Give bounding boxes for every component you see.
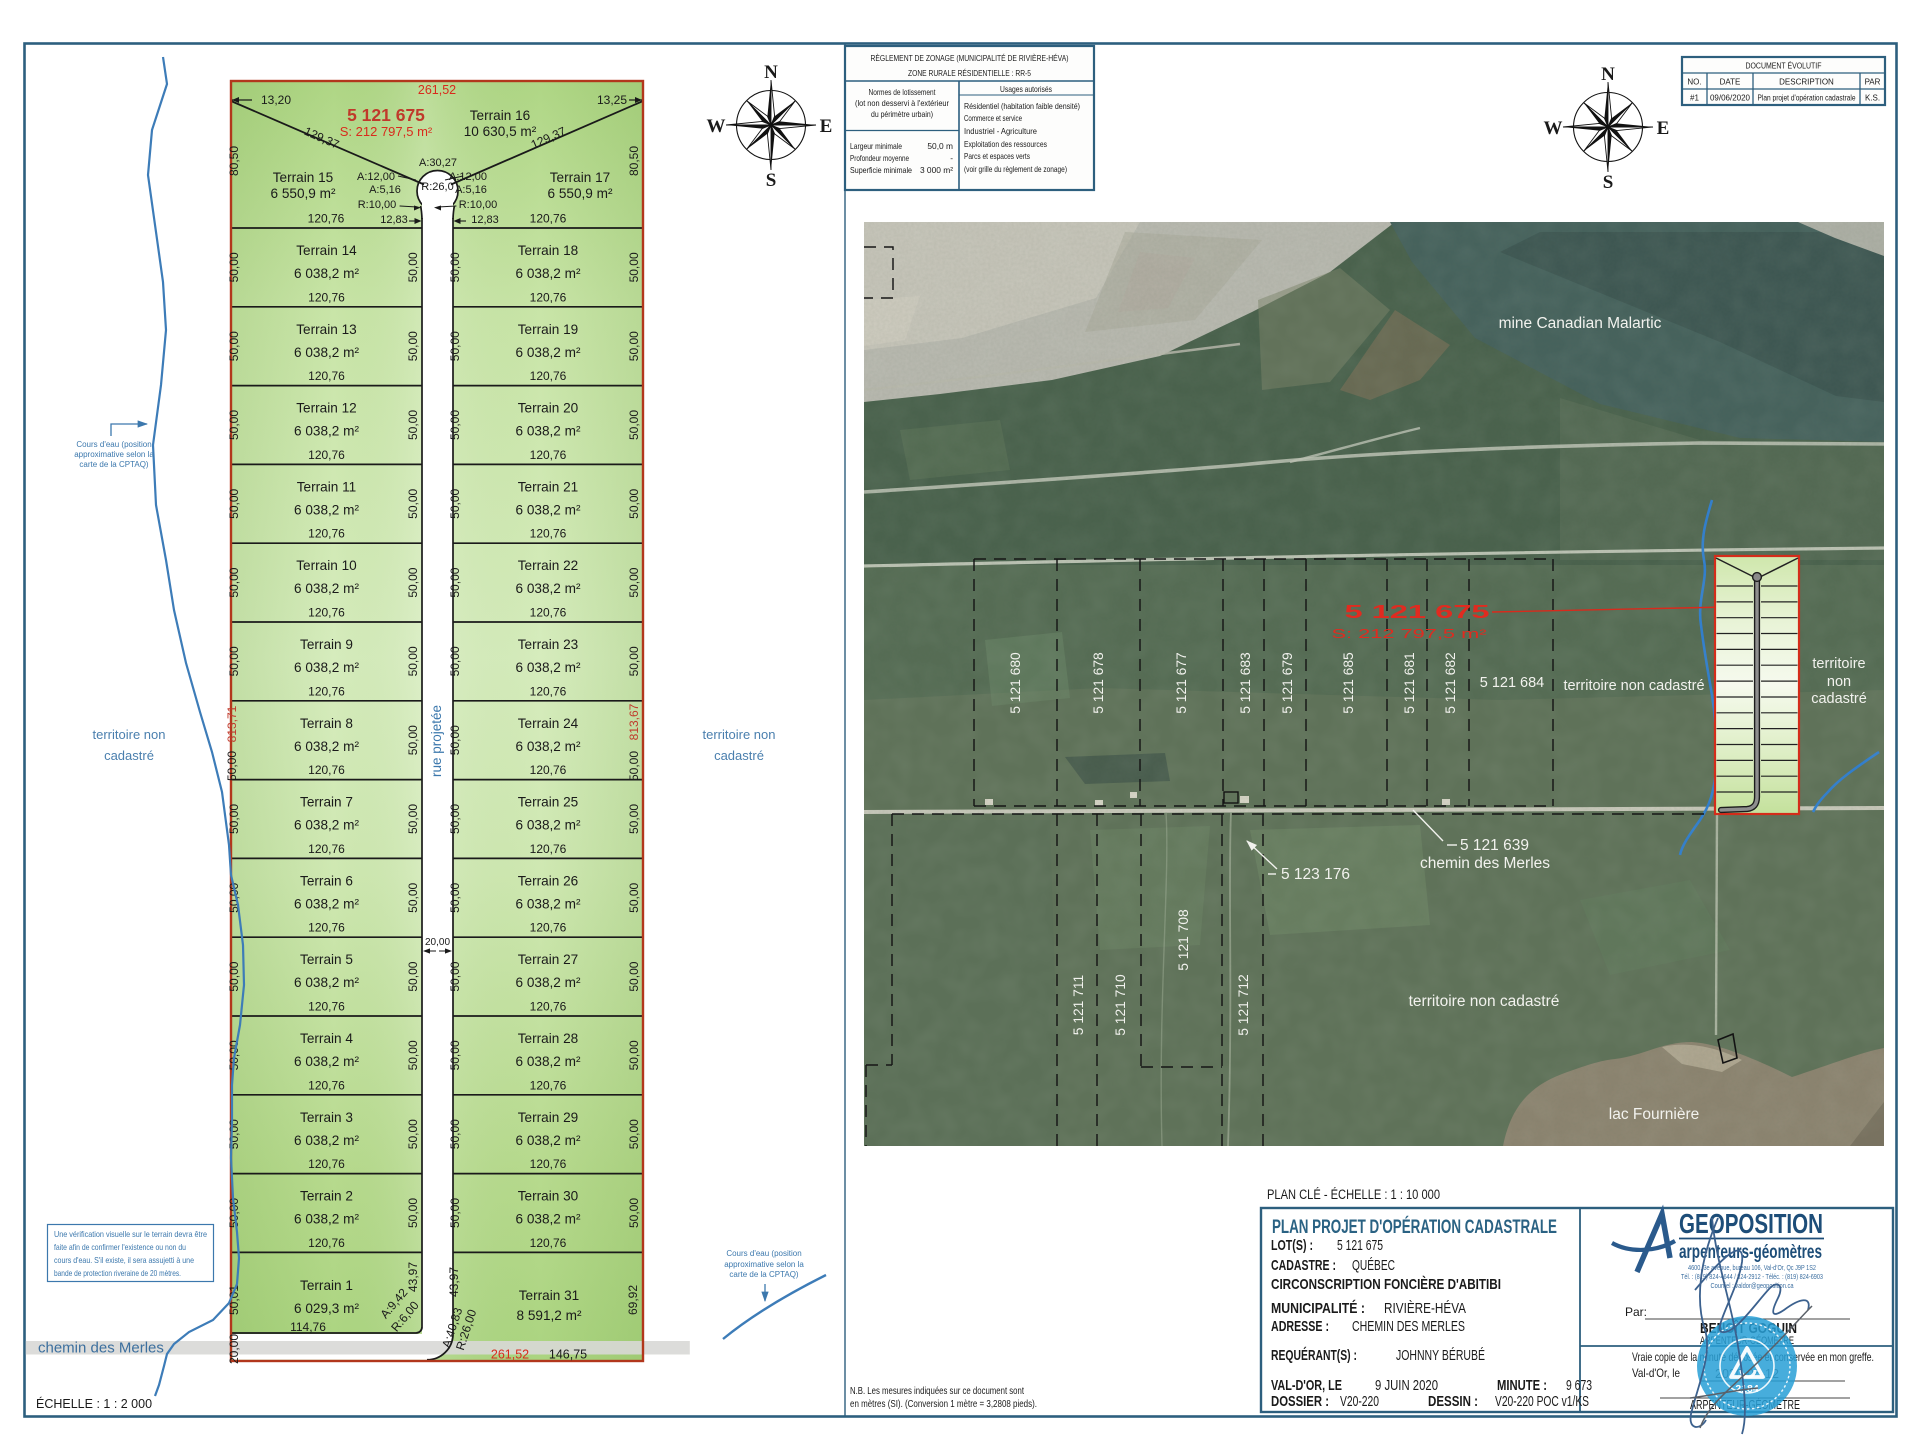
- svg-text:PLAN CLÉ - ÉCHELLE : 1 : 10 00: PLAN CLÉ - ÉCHELLE : 1 : 10 000: [1267, 1187, 1440, 1202]
- svg-text:6 038,2 m²: 6 038,2 m²: [294, 975, 359, 990]
- svg-text:261,52: 261,52: [491, 1348, 529, 1362]
- svg-text:6 038,2 m²: 6 038,2 m²: [294, 818, 359, 833]
- svg-text:Terrain 21: Terrain 21: [518, 479, 578, 494]
- svg-text:N.B. Les mesures indiquées sur: N.B. Les mesures indiquées sur ce docume…: [850, 1386, 1024, 1397]
- svg-text:territoire non: territoire non: [93, 727, 166, 742]
- svg-text:50,00: 50,00: [627, 1040, 641, 1070]
- svg-text:mine Canadian Malartic: mine Canadian Malartic: [1499, 315, 1662, 332]
- svg-text:8 591,2 m²: 8 591,2 m²: [517, 1308, 582, 1323]
- svg-text:5 121 683: 5 121 683: [1238, 652, 1253, 714]
- svg-text:V20-220 POC v1/KS: V20-220 POC v1/KS: [1495, 1393, 1589, 1410]
- svg-text:Terrain 5: Terrain 5: [300, 952, 353, 967]
- svg-text:territoire: territoire: [1812, 656, 1865, 672]
- svg-text:RIVIÈRE-HÉVA: RIVIÈRE-HÉVA: [1384, 1300, 1466, 1317]
- svg-text:REQUÉRANT(S) :: REQUÉRANT(S) :: [1271, 1347, 1357, 1364]
- svg-text:50,00: 50,00: [627, 882, 641, 912]
- svg-text:09/06/2020: 09/06/2020: [1710, 94, 1751, 103]
- svg-text:Terrain 14: Terrain 14: [296, 243, 357, 258]
- svg-text:50,00: 50,00: [448, 961, 462, 991]
- svg-text:VAL-D'OR, LE: VAL-D'OR, LE: [1271, 1377, 1342, 1394]
- svg-text:Terrain 3: Terrain 3: [300, 1110, 353, 1125]
- svg-text:120,76: 120,76: [308, 921, 345, 935]
- svg-text:6 038,2 m²: 6 038,2 m²: [294, 660, 359, 675]
- svg-text:50,00: 50,00: [406, 331, 420, 361]
- svg-text:50,00: 50,00: [406, 1198, 420, 1228]
- svg-text:5 121 685: 5 121 685: [1341, 652, 1356, 714]
- svg-text:50,00: 50,00: [448, 1119, 462, 1149]
- svg-text:rue projetée: rue projetée: [429, 705, 444, 777]
- svg-text:120,76: 120,76: [530, 684, 567, 698]
- svg-text:12,83: 12,83: [380, 214, 408, 226]
- svg-text:50,00: 50,00: [406, 961, 420, 991]
- svg-text:E: E: [820, 116, 833, 137]
- svg-text:50,00: 50,00: [448, 725, 462, 755]
- svg-text:Parcs et espaces verts: Parcs et espaces verts: [964, 151, 1030, 161]
- svg-text:5 121 678: 5 121 678: [1091, 652, 1106, 714]
- svg-text:MINUTE :: MINUTE :: [1497, 1377, 1547, 1394]
- svg-text:80,50: 80,50: [627, 146, 641, 176]
- svg-text:50,00: 50,00: [627, 961, 641, 991]
- svg-text:cours d'eau. S'il existe, il s: cours d'eau. S'il existe, il sera assuje…: [54, 1255, 194, 1265]
- svg-text:6 038,2 m²: 6 038,2 m²: [516, 739, 581, 754]
- svg-text:50,00: 50,00: [627, 567, 641, 597]
- svg-text:120,76: 120,76: [530, 212, 567, 226]
- svg-text:CHEMIN DES MERLES: CHEMIN DES MERLES: [1352, 1318, 1465, 1335]
- svg-text:K.S.: K.S.: [1865, 94, 1880, 103]
- svg-text:5 121 680: 5 121 680: [1008, 652, 1023, 714]
- svg-text:6 038,2 m²: 6 038,2 m²: [516, 1133, 581, 1148]
- svg-text:arpenteurs-géomètres: arpenteurs-géomètres: [1679, 1241, 1822, 1263]
- svg-text:120,76: 120,76: [530, 1157, 567, 1171]
- svg-text:813,67: 813,67: [627, 703, 641, 740]
- svg-text:120,76: 120,76: [530, 921, 567, 935]
- svg-text:DESCRIPTION: DESCRIPTION: [1779, 78, 1834, 87]
- svg-text:120,76: 120,76: [530, 1000, 567, 1014]
- svg-text:chemin des Merles: chemin des Merles: [1420, 855, 1550, 872]
- svg-text:6 038,2 m²: 6 038,2 m²: [294, 424, 359, 439]
- svg-text:50,00: 50,00: [448, 567, 462, 597]
- svg-text:50,00: 50,00: [227, 488, 241, 518]
- svg-text:120,76: 120,76: [530, 448, 567, 462]
- svg-text:Superficie minimale: Superficie minimale: [850, 165, 912, 175]
- svg-text:50,00: 50,00: [627, 646, 641, 676]
- svg-text:lac Fournière: lac Fournière: [1609, 1106, 1699, 1123]
- svg-text:GEOPOSITION: GEOPOSITION: [1679, 1208, 1823, 1239]
- svg-text:120,76: 120,76: [308, 369, 345, 383]
- svg-text:114,76: 114,76: [290, 1320, 326, 1334]
- svg-text:5 121 712: 5 121 712: [1236, 974, 1251, 1035]
- svg-text:S: S: [1603, 172, 1614, 193]
- svg-text:ADRESSE :: ADRESSE :: [1271, 1318, 1329, 1335]
- svg-text:Cours d'eau (position: Cours d'eau (position: [76, 440, 151, 449]
- svg-text:5 121 675: 5 121 675: [1337, 1237, 1383, 1254]
- svg-text:6 550,9 m²: 6 550,9 m²: [548, 186, 613, 201]
- svg-text:CADASTRE :: CADASTRE :: [1271, 1257, 1336, 1274]
- svg-text:120,76: 120,76: [530, 527, 567, 541]
- svg-text:Terrain 7: Terrain 7: [300, 795, 353, 810]
- svg-text:non: non: [1827, 674, 1851, 690]
- svg-text:Largeur minimale: Largeur minimale: [850, 141, 902, 151]
- svg-text:50,00: 50,00: [406, 488, 420, 518]
- svg-text:6 038,2 m²: 6 038,2 m²: [294, 1212, 359, 1227]
- svg-text:DESSIN :: DESSIN :: [1428, 1393, 1478, 1410]
- svg-text:faite afin de confirmer l'exis: faite afin de confirmer l'existence ou n…: [54, 1242, 186, 1252]
- svg-text:120,76: 120,76: [308, 763, 345, 777]
- svg-text:ÉCHELLE : 1 : 2 000: ÉCHELLE : 1 : 2 000: [36, 1396, 152, 1411]
- svg-text:Terrain 25: Terrain 25: [518, 795, 578, 810]
- svg-text:120,76: 120,76: [530, 606, 567, 620]
- svg-text:Terrain 27: Terrain 27: [518, 952, 578, 967]
- svg-text:PAR: PAR: [1865, 78, 1881, 87]
- svg-text:50,00: 50,00: [627, 488, 641, 518]
- svg-text:50,00: 50,00: [627, 1119, 641, 1149]
- svg-text:cadastré: cadastré: [714, 748, 764, 763]
- svg-text:6 038,2 m²: 6 038,2 m²: [516, 660, 581, 675]
- svg-text:LOT(S) :: LOT(S) :: [1271, 1237, 1313, 1254]
- svg-text:120,76: 120,76: [530, 842, 567, 856]
- svg-text:120,76: 120,76: [308, 606, 345, 620]
- svg-text:120,76: 120,76: [530, 290, 567, 304]
- svg-text:E: E: [1657, 118, 1670, 139]
- svg-text:261,52: 261,52: [418, 83, 456, 97]
- svg-text:en mètres (SI). (Conversion 1: en mètres (SI). (Conversion 1 mètre = 3,…: [850, 1399, 1037, 1410]
- svg-text:Terrain 28: Terrain 28: [518, 1031, 578, 1046]
- svg-text:Terrain 31: Terrain 31: [519, 1288, 579, 1303]
- svg-text:Exploitation des ressources: Exploitation des ressources: [964, 139, 1047, 149]
- svg-text:DOSSIER :: DOSSIER :: [1271, 1393, 1329, 1410]
- svg-text:Commerce et service: Commerce et service: [964, 113, 1022, 123]
- svg-text:50,00: 50,00: [406, 882, 420, 912]
- svg-text:Terrain 13: Terrain 13: [296, 322, 356, 337]
- svg-text:50,00: 50,00: [627, 751, 641, 781]
- svg-text:Terrain 4: Terrain 4: [300, 1031, 353, 1046]
- svg-text:50,00: 50,00: [448, 331, 462, 361]
- svg-text:Terrain 22: Terrain 22: [518, 558, 578, 573]
- svg-text:6 038,2 m²: 6 038,2 m²: [516, 818, 581, 833]
- svg-text:Terrain 16: Terrain 16: [470, 108, 530, 123]
- svg-text:Terrain 1: Terrain 1: [300, 1278, 353, 1293]
- svg-text:S: 212 797,5 m²: S: 212 797,5 m²: [340, 124, 433, 139]
- svg-text:Terrain 11: Terrain 11: [297, 479, 356, 494]
- svg-text:9 673: 9 673: [1566, 1377, 1592, 1394]
- svg-text:territoire non cadastré: territoire non cadastré: [1563, 678, 1704, 694]
- svg-text:5 121 682: 5 121 682: [1443, 652, 1458, 713]
- svg-text:6 550,9 m²: 6 550,9 m²: [271, 186, 336, 201]
- svg-text:DOCUMENT ÉVOLUTIF: DOCUMENT ÉVOLUTIF: [1746, 61, 1822, 71]
- svg-text:5 121 711: 5 121 711: [1071, 975, 1086, 1035]
- svg-text:50,00: 50,00: [406, 1040, 420, 1070]
- svg-text:50,00: 50,00: [627, 331, 641, 361]
- svg-text:5 123 176: 5 123 176: [1281, 866, 1350, 883]
- svg-text:NO.: NO.: [1687, 78, 1701, 87]
- svg-text:120,76: 120,76: [308, 527, 345, 541]
- svg-text:6 038,2 m²: 6 038,2 m²: [516, 1054, 581, 1069]
- svg-text:S: S: [766, 170, 777, 191]
- svg-text:120,76: 120,76: [308, 1078, 345, 1092]
- svg-text:120,76: 120,76: [530, 1078, 567, 1092]
- svg-text:120,76: 120,76: [530, 1236, 567, 1250]
- svg-text:6 038,2 m²: 6 038,2 m²: [516, 581, 581, 596]
- svg-text:6 038,2 m²: 6 038,2 m²: [294, 581, 359, 596]
- svg-text:approximative selon la: approximative selon la: [724, 1260, 804, 1269]
- svg-text:Courriel : valdor@geoposition.: Courriel : valdor@geoposition.ca: [1711, 1281, 1795, 1290]
- svg-text:50,00: 50,00: [406, 567, 420, 597]
- svg-text:120,76: 120,76: [308, 684, 345, 698]
- svg-text:Plan projet d'opération cadast: Plan projet d'opération cadastrale: [1758, 94, 1856, 103]
- svg-text:50,00: 50,00: [627, 252, 641, 282]
- svg-text:50,00: 50,00: [627, 804, 641, 834]
- svg-text:6 038,2 m²: 6 038,2 m²: [516, 502, 581, 517]
- svg-text:Terrain 12: Terrain 12: [296, 401, 356, 416]
- svg-text:A:5,16: A:5,16: [455, 184, 487, 196]
- svg-text:territoire non cadastré: territoire non cadastré: [1409, 993, 1560, 1010]
- svg-text:50,00: 50,00: [448, 804, 462, 834]
- svg-text:Terrain 24: Terrain 24: [518, 716, 579, 731]
- svg-text:4600, 3e avenue, bureau 106, V: 4600, 3e avenue, bureau 106, Val-d’Or, Q…: [1688, 1263, 1816, 1272]
- svg-text:Terrain 17: Terrain 17: [550, 170, 610, 185]
- svg-text:146,75: 146,75: [549, 1348, 587, 1362]
- svg-text:6 038,2 m²: 6 038,2 m²: [516, 975, 581, 990]
- svg-text:Terrain 26: Terrain 26: [518, 873, 578, 888]
- svg-text:carte de la CPTAQ): carte de la CPTAQ): [729, 1270, 799, 1279]
- svg-text:43,97: 43,97: [447, 1267, 461, 1297]
- svg-text:120,76: 120,76: [308, 842, 345, 856]
- svg-text:20,00: 20,00: [425, 937, 450, 948]
- svg-text:Terrain 30: Terrain 30: [518, 1189, 579, 1204]
- svg-text:Terrain 8: Terrain 8: [300, 716, 353, 731]
- svg-text:Par:: Par:: [1625, 1305, 1647, 1319]
- svg-text:50,00: 50,00: [448, 252, 462, 282]
- svg-text:DATE: DATE: [1720, 78, 1741, 87]
- svg-text:(voir grille du règlement de z: (voir grille du règlement de zonage): [964, 164, 1067, 174]
- svg-text:Terrain 10: Terrain 10: [296, 558, 357, 573]
- svg-text:Val-d'Or, le: Val-d'Or, le: [1632, 1366, 1680, 1380]
- svg-text:20,00: 20,00: [227, 1334, 241, 1364]
- svg-text:6 038,2 m²: 6 038,2 m²: [516, 896, 581, 911]
- svg-text:6 038,2 m²: 6 038,2 m²: [294, 502, 359, 517]
- svg-text:120,76: 120,76: [308, 1157, 345, 1171]
- svg-text:6 038,2 m²: 6 038,2 m²: [294, 266, 359, 281]
- svg-text:carte de la CPTAQ): carte de la CPTAQ): [79, 460, 149, 469]
- svg-text:120,76: 120,76: [530, 763, 567, 777]
- svg-text:5 121 710: 5 121 710: [1113, 974, 1128, 1036]
- svg-text:A:12,00: A:12,00: [449, 171, 487, 183]
- svg-text:6 038,2 m²: 6 038,2 m²: [516, 424, 581, 439]
- svg-text:50,00: 50,00: [225, 751, 239, 781]
- svg-text:50,00: 50,00: [406, 252, 420, 282]
- svg-text:W: W: [707, 116, 726, 137]
- svg-text:50,00: 50,00: [406, 646, 420, 676]
- svg-text:5 121 684: 5 121 684: [1480, 675, 1545, 691]
- svg-text:JOHNNY BÉRUBÉ: JOHNNY BÉRUBÉ: [1396, 1347, 1485, 1364]
- svg-text:6 038,2 m²: 6 038,2 m²: [516, 345, 581, 360]
- svg-text:Une vérification visuelle sur: Une vérification visuelle sur le terrain…: [54, 1229, 207, 1239]
- svg-text:6 029,3 m²: 6 029,3 m²: [294, 1301, 359, 1316]
- svg-text:PLAN PROJET D'OPÉRATION CADAST: PLAN PROJET D'OPÉRATION CADASTRALE: [1272, 1215, 1557, 1238]
- svg-text:Terrain 19: Terrain 19: [518, 322, 578, 337]
- svg-text:R:10,00: R:10,00: [358, 199, 397, 211]
- svg-text:6 038,2 m²: 6 038,2 m²: [294, 896, 359, 911]
- svg-text:50,00: 50,00: [227, 252, 241, 282]
- svg-text:S: 212 797,5 m²: S: 212 797,5 m²: [1332, 626, 1488, 641]
- svg-text:CIRCONSCRIPTION FONCIÈRE D'ABI: CIRCONSCRIPTION FONCIÈRE D'ABITIBI: [1271, 1276, 1501, 1293]
- svg-text:Industriel - Agriculture: Industriel - Agriculture: [964, 126, 1037, 136]
- svg-text:Profondeur moyenne: Profondeur moyenne: [850, 153, 909, 163]
- svg-text:A:12,00: A:12,00: [357, 171, 395, 183]
- svg-text:6 038,2 m²: 6 038,2 m²: [516, 266, 581, 281]
- svg-text:50,00: 50,00: [227, 567, 241, 597]
- svg-text:N: N: [764, 62, 778, 83]
- svg-text:N: N: [1601, 64, 1615, 85]
- svg-text:10 630,5 m²: 10 630,5 m²: [464, 124, 537, 139]
- svg-text:5 121 639: 5 121 639: [1460, 837, 1529, 854]
- svg-text:territoire non: territoire non: [703, 727, 776, 742]
- svg-text:#1: #1: [1690, 94, 1699, 103]
- svg-text:813,71: 813,71: [225, 705, 239, 742]
- svg-text:50,00: 50,00: [406, 725, 420, 755]
- svg-text:50,00: 50,00: [448, 488, 462, 518]
- svg-text:R:10,00: R:10,00: [459, 199, 498, 211]
- svg-text:(lot non desservi à l'extérieu: (lot non desservi à l'extérieur: [855, 98, 949, 108]
- svg-text:Cours d'eau (position: Cours d'eau (position: [726, 1249, 801, 1258]
- svg-text:Terrain 2: Terrain 2: [300, 1189, 353, 1204]
- svg-text:50,00: 50,00: [406, 1119, 420, 1149]
- svg-text:50,00: 50,00: [448, 410, 462, 440]
- svg-text:ZONE RURALE RÉSIDENTIELLE : RR: ZONE RURALE RÉSIDENTIELLE : RR-5: [908, 68, 1031, 78]
- svg-text:50,00: 50,00: [406, 410, 420, 440]
- svg-text:Terrain 9: Terrain 9: [300, 637, 353, 652]
- svg-text:120,76: 120,76: [308, 290, 345, 304]
- svg-text:chemin des Merles: chemin des Merles: [38, 1340, 164, 1357]
- svg-text:approximative selon la: approximative selon la: [74, 450, 154, 459]
- svg-text:R:26,0: R:26,0: [421, 181, 453, 193]
- svg-text:-: -: [950, 153, 953, 163]
- svg-text:6 038,2 m²: 6 038,2 m²: [516, 1212, 581, 1227]
- svg-text:V20-220: V20-220: [1340, 1393, 1379, 1410]
- svg-text:Normes de lotissement: Normes de lotissement: [869, 87, 937, 97]
- svg-text:50,00: 50,00: [627, 410, 641, 440]
- svg-text:6 038,2 m²: 6 038,2 m²: [294, 739, 359, 754]
- svg-text:5 121 675: 5 121 675: [1345, 601, 1490, 622]
- svg-text:50,00: 50,00: [448, 646, 462, 676]
- svg-text:120,76: 120,76: [308, 448, 345, 462]
- svg-text:50,00: 50,00: [448, 1198, 462, 1228]
- svg-text:6 038,2 m²: 6 038,2 m²: [294, 1054, 359, 1069]
- svg-text:50,00: 50,00: [227, 804, 241, 834]
- svg-text:50,00: 50,00: [627, 1198, 641, 1228]
- svg-text:5 121 708: 5 121 708: [1176, 909, 1191, 971]
- svg-text:6 038,2 m²: 6 038,2 m²: [294, 345, 359, 360]
- svg-text:120,76: 120,76: [308, 212, 345, 226]
- svg-text:Résidentiel (habitation faible: Résidentiel (habitation faible densité): [964, 101, 1080, 111]
- svg-text:RÈGLEMENT DE ZONAGE (MUNICIPAL: RÈGLEMENT DE ZONAGE (MUNICIPALITÉ DE RIV…: [871, 53, 1069, 63]
- svg-text:120,76: 120,76: [308, 1000, 345, 1014]
- svg-text:5 121 675: 5 121 675: [347, 105, 425, 125]
- svg-text:du périmètre urbain): du périmètre urbain): [871, 109, 933, 119]
- svg-text:120,76: 120,76: [530, 369, 567, 383]
- svg-text:bande de protection riveraine: bande de protection riveraine de 20 mètr…: [54, 1268, 181, 1278]
- svg-text:3 000 m²: 3 000 m²: [920, 165, 953, 175]
- svg-text:50,00: 50,00: [448, 882, 462, 912]
- svg-text:Terrain 15: Terrain 15: [273, 170, 333, 185]
- svg-text:13,20: 13,20: [261, 93, 291, 107]
- svg-text:Terrain 6: Terrain 6: [300, 873, 353, 888]
- svg-text:Terrain 20: Terrain 20: [518, 401, 579, 416]
- svg-text:50,00: 50,00: [227, 961, 241, 991]
- svg-text:50,00: 50,00: [227, 646, 241, 676]
- svg-text:5 121 679: 5 121 679: [1280, 652, 1295, 714]
- svg-text:50,00: 50,00: [227, 410, 241, 440]
- svg-text:9 JUIN 2020: 9 JUIN 2020: [1375, 1377, 1438, 1394]
- svg-text:MUNICIPALITÉ :: MUNICIPALITÉ :: [1271, 1300, 1365, 1317]
- svg-text:W: W: [1544, 118, 1563, 139]
- svg-text:QUÉBEC: QUÉBEC: [1352, 1257, 1395, 1274]
- svg-text:80,50: 80,50: [227, 146, 241, 176]
- svg-text:43,97: 43,97: [406, 1262, 420, 1292]
- svg-text:cadastré: cadastré: [1811, 691, 1867, 707]
- svg-text:120,76: 120,76: [308, 1236, 345, 1250]
- svg-text:6 038,2 m²: 6 038,2 m²: [294, 1133, 359, 1148]
- svg-text:Terrain 23: Terrain 23: [518, 637, 578, 652]
- svg-text:50,00: 50,00: [406, 804, 420, 834]
- svg-text:Terrain 18: Terrain 18: [518, 243, 578, 258]
- svg-text:50,00: 50,00: [227, 1119, 241, 1149]
- svg-text:13,25: 13,25: [597, 93, 627, 107]
- svg-text:69,92: 69,92: [626, 1285, 640, 1315]
- svg-text:A:30,27: A:30,27: [419, 157, 457, 169]
- svg-text:5 121 681: 5 121 681: [1402, 652, 1417, 713]
- svg-text:A:5,16: A:5,16: [369, 184, 401, 196]
- svg-text:50,0 m: 50,0 m: [927, 141, 953, 151]
- svg-text:Usages autorisés: Usages autorisés: [1000, 84, 1052, 94]
- svg-text:5 121 677: 5 121 677: [1174, 652, 1189, 713]
- svg-text:cadastré: cadastré: [104, 748, 154, 763]
- svg-text:50,00: 50,00: [448, 1040, 462, 1070]
- svg-text:Terrain 29: Terrain 29: [518, 1110, 578, 1125]
- svg-text:12,83: 12,83: [471, 214, 499, 226]
- svg-text:50,00: 50,00: [227, 331, 241, 361]
